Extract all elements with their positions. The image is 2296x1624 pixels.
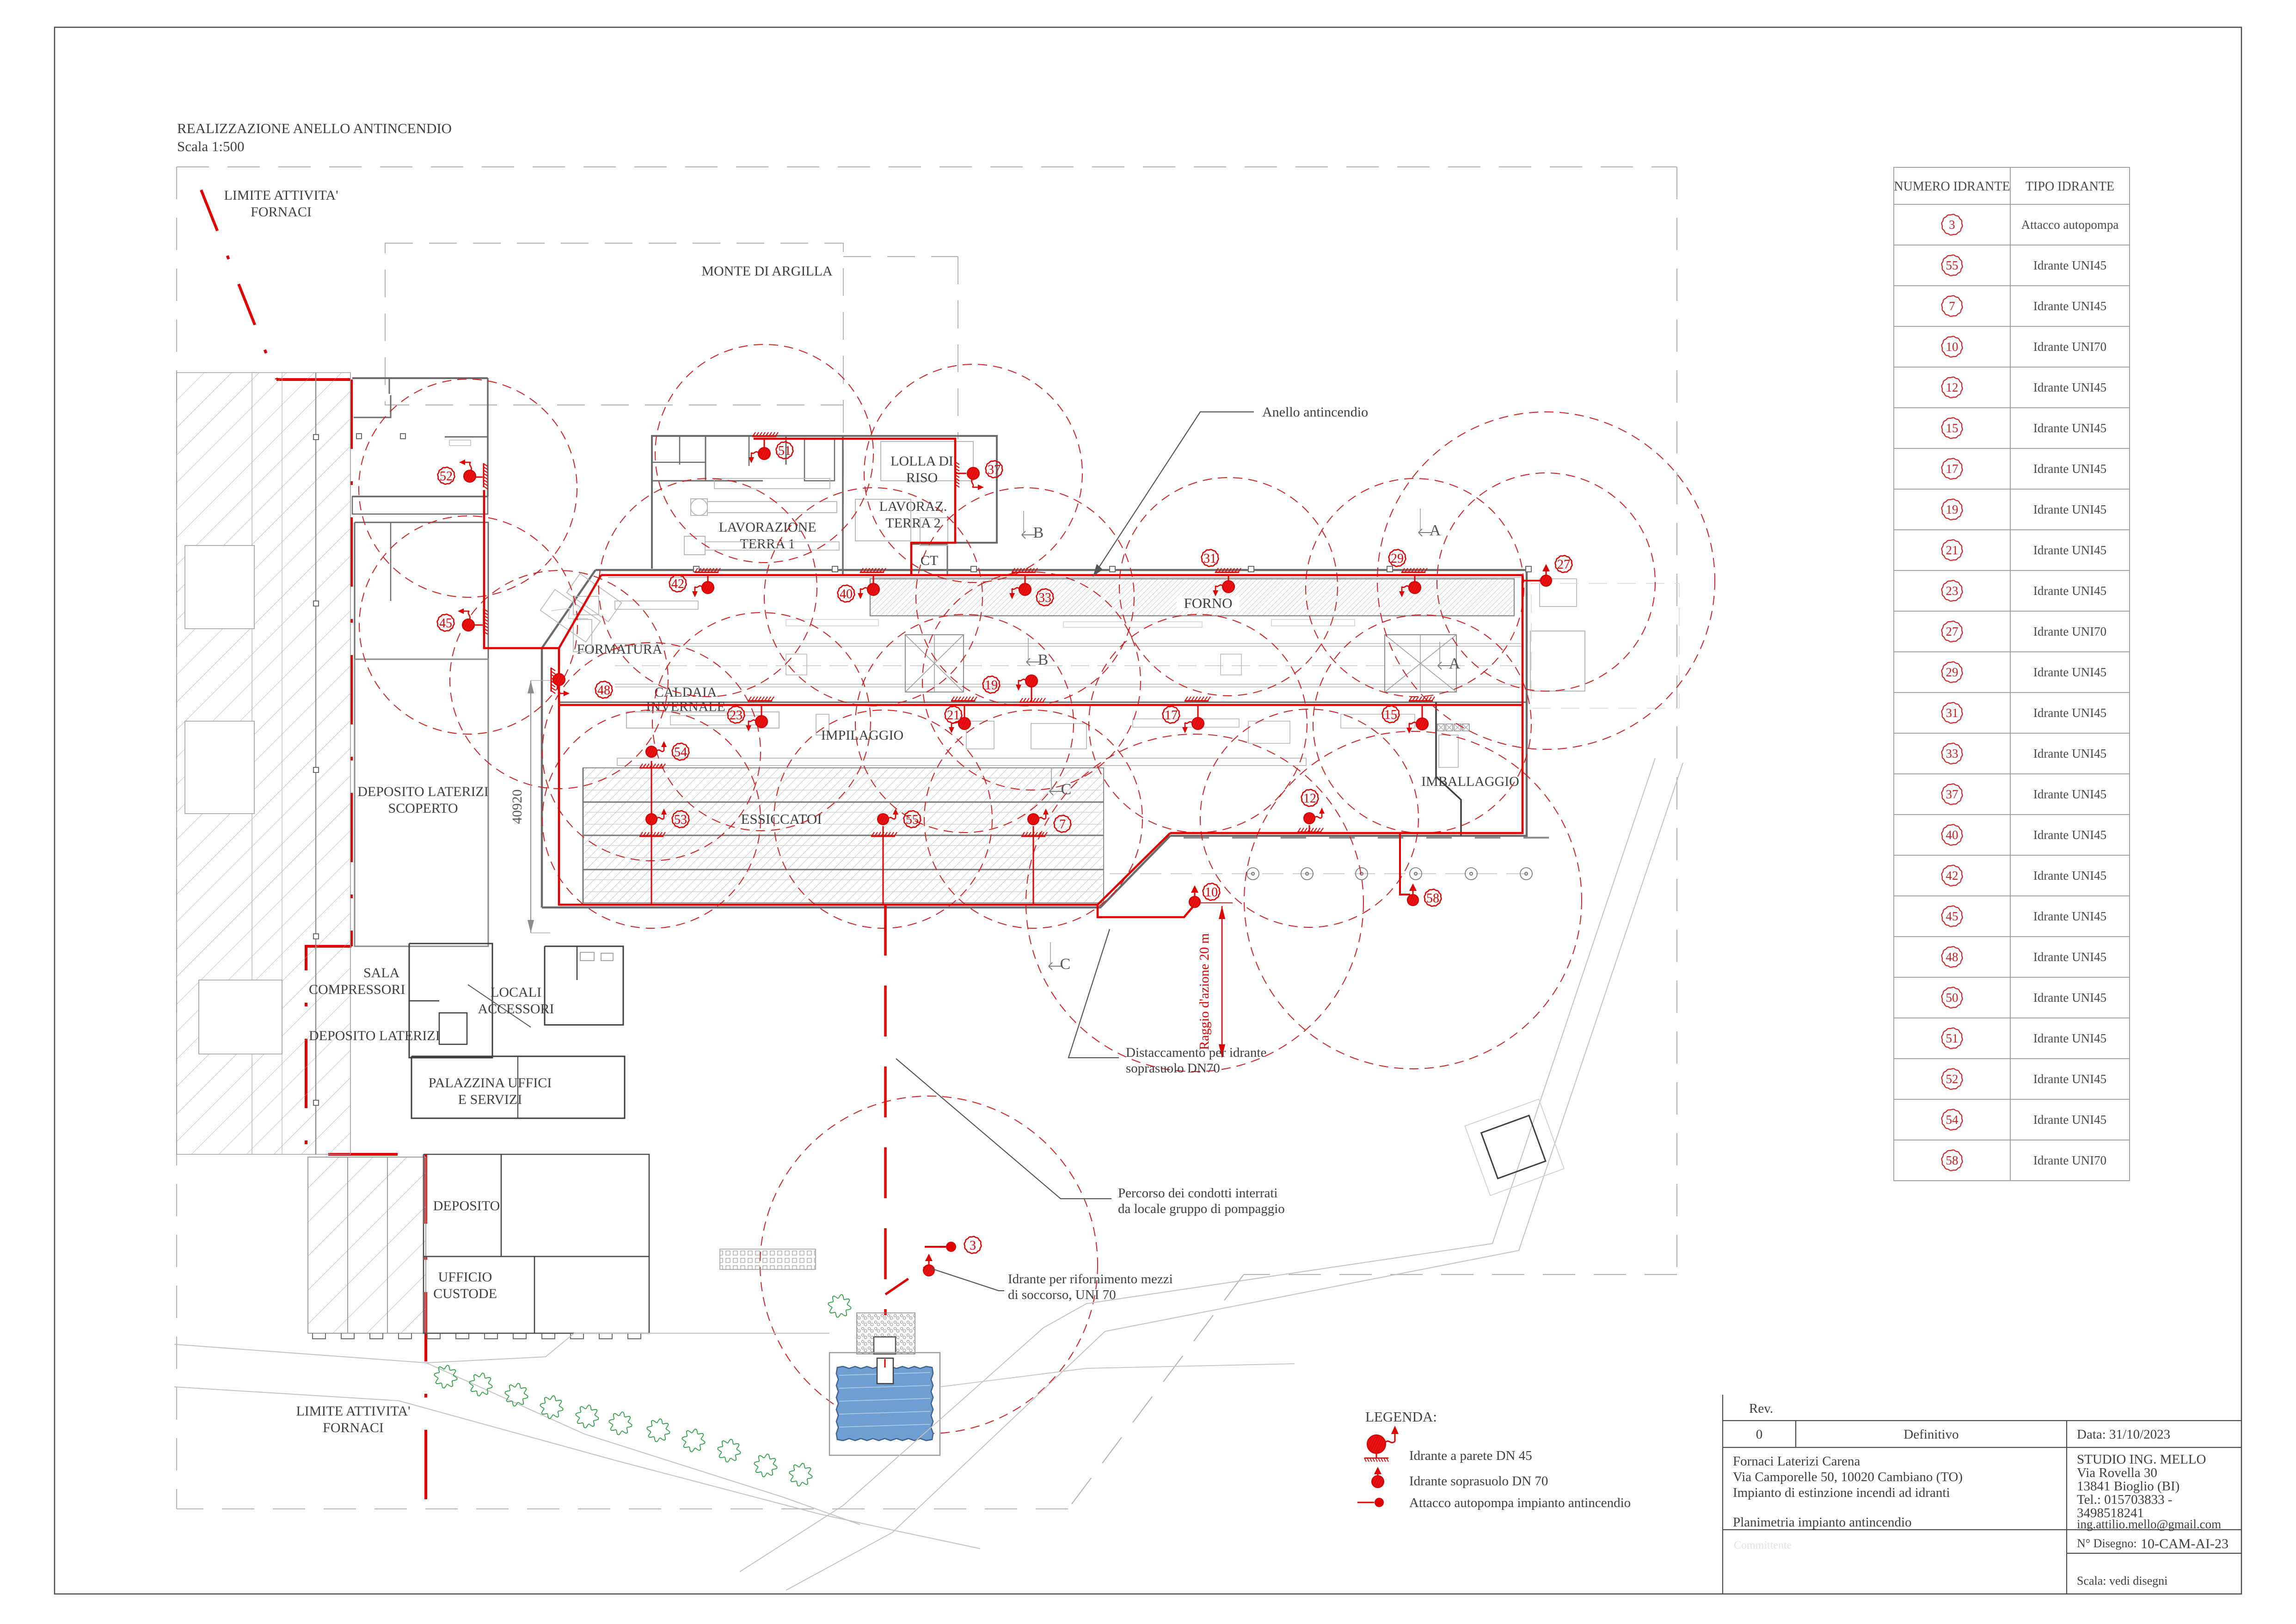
svg-text:Definitivo: Definitivo bbox=[1903, 1427, 1958, 1442]
svg-text:SALA: SALA bbox=[363, 965, 400, 981]
svg-text:LIMITE ATTIVITA': LIMITE ATTIVITA' bbox=[224, 188, 338, 203]
svg-text:Committente: Committente bbox=[1734, 1539, 1792, 1551]
svg-text:E SERVIZI: E SERVIZI bbox=[458, 1092, 522, 1107]
svg-text:7: 7 bbox=[1949, 299, 1955, 313]
svg-text:40920: 40920 bbox=[510, 790, 525, 824]
svg-text:DEPOSITO: DEPOSITO bbox=[433, 1198, 500, 1213]
svg-text:C: C bbox=[1060, 956, 1071, 973]
svg-text:51: 51 bbox=[1946, 1031, 1958, 1045]
svg-text:Idrante UNI45: Idrante UNI45 bbox=[2033, 1113, 2106, 1127]
svg-text:10: 10 bbox=[1205, 885, 1218, 900]
svg-text:IMBALLAGGIO: IMBALLAGGIO bbox=[1421, 774, 1519, 789]
svg-text:51: 51 bbox=[778, 444, 791, 458]
svg-text:55: 55 bbox=[1946, 258, 1958, 272]
svg-text:ACCESSORI: ACCESSORI bbox=[478, 1001, 554, 1017]
svg-text:Idrante UNI45: Idrante UNI45 bbox=[2033, 1072, 2106, 1086]
svg-text:50: 50 bbox=[1946, 991, 1958, 1005]
svg-text:7: 7 bbox=[1059, 817, 1066, 832]
svg-text:58: 58 bbox=[1426, 891, 1439, 906]
svg-text:23: 23 bbox=[1946, 584, 1958, 598]
svg-text:FORNACI: FORNACI bbox=[323, 1420, 384, 1435]
svg-text:LIMITE ATTIVITA': LIMITE ATTIVITA' bbox=[296, 1403, 410, 1419]
svg-text:FORNACI: FORNACI bbox=[251, 204, 312, 220]
svg-text:Idrante UNI45: Idrante UNI45 bbox=[2033, 869, 2106, 882]
svg-text:Scala 1:500: Scala 1:500 bbox=[177, 138, 245, 154]
svg-text:Idrante UNI45: Idrante UNI45 bbox=[2033, 462, 2106, 476]
svg-text:da locale gruppo di pompaggio: da locale gruppo di pompaggio bbox=[1118, 1201, 1285, 1216]
svg-text:Idrante UNI70: Idrante UNI70 bbox=[2033, 340, 2106, 354]
svg-text:Via Rovella 30: Via Rovella 30 bbox=[2077, 1465, 2157, 1480]
svg-text:Anello antincendio: Anello antincendio bbox=[1262, 404, 1368, 420]
svg-text:54: 54 bbox=[1946, 1113, 1959, 1127]
svg-text:19: 19 bbox=[1946, 503, 1958, 516]
svg-text:17: 17 bbox=[1946, 462, 1958, 476]
svg-text:29: 29 bbox=[1946, 665, 1958, 679]
svg-text:3: 3 bbox=[1949, 218, 1955, 232]
svg-text:10: 10 bbox=[1946, 340, 1958, 354]
svg-text:INVERNALE: INVERNALE bbox=[646, 699, 725, 714]
svg-text:CT: CT bbox=[921, 553, 938, 568]
svg-text:soprasuolo DN70: soprasuolo DN70 bbox=[1126, 1061, 1220, 1076]
svg-text:Idrante a parete DN 45: Idrante a parete DN 45 bbox=[1409, 1448, 1532, 1463]
svg-text:Idrante UNI45: Idrante UNI45 bbox=[2033, 787, 2106, 801]
svg-text:52: 52 bbox=[440, 469, 453, 484]
svg-text:C: C bbox=[1061, 781, 1072, 798]
svg-text:Idrante UNI45: Idrante UNI45 bbox=[2033, 665, 2106, 679]
svg-text:Idrante UNI70: Idrante UNI70 bbox=[2033, 625, 2106, 638]
svg-text:Idrante UNI45: Idrante UNI45 bbox=[2033, 991, 2106, 1005]
svg-text:Impianto di estinzione incendi: Impianto di estinzione incendi ad idrant… bbox=[1733, 1485, 1950, 1500]
svg-text:53: 53 bbox=[674, 813, 687, 827]
svg-text:Rev.: Rev. bbox=[1749, 1401, 1773, 1416]
svg-text:Idrante UNI45: Idrante UNI45 bbox=[2033, 503, 2106, 516]
svg-text:33: 33 bbox=[1038, 591, 1051, 605]
svg-text:STUDIO ING. MELLO: STUDIO ING. MELLO bbox=[2077, 1452, 2206, 1467]
svg-text:21: 21 bbox=[947, 708, 960, 723]
svg-text:Idrante UNI45: Idrante UNI45 bbox=[2033, 909, 2106, 923]
svg-text:27: 27 bbox=[1946, 625, 1958, 638]
svg-text:FORNO: FORNO bbox=[1184, 595, 1232, 611]
svg-text:40: 40 bbox=[1946, 828, 1958, 842]
svg-text:10-CAM-AI-23: 10-CAM-AI-23 bbox=[2141, 1536, 2228, 1551]
svg-text:DEPOSITO LATERIZI: DEPOSITO LATERIZI bbox=[357, 784, 489, 799]
svg-text:Idrante UNI45: Idrante UNI45 bbox=[2033, 747, 2106, 760]
svg-text:58: 58 bbox=[1946, 1153, 1958, 1167]
svg-text:Idrante UNI45: Idrante UNI45 bbox=[2033, 258, 2106, 272]
svg-text:Via Camporelle 50, 10020 Cambi: Via Camporelle 50, 10020 Cambiano (TO) bbox=[1733, 1470, 1963, 1484]
svg-text:Idrante per rifornimento mezzi: Idrante per rifornimento mezzi bbox=[1008, 1272, 1173, 1287]
svg-text:55: 55 bbox=[906, 813, 919, 827]
svg-text:ESSICCATOI: ESSICCATOI bbox=[741, 811, 822, 827]
svg-text:SCOPERTO: SCOPERTO bbox=[388, 801, 458, 816]
svg-text:Raggio d'azione 20 m: Raggio d'azione 20 m bbox=[1197, 933, 1212, 1050]
svg-text:A: A bbox=[1449, 655, 1461, 672]
svg-text:Scala: vedi disegni: Scala: vedi disegni bbox=[2077, 1574, 2167, 1587]
svg-text:B: B bbox=[1033, 524, 1044, 541]
svg-text:23: 23 bbox=[730, 708, 743, 723]
svg-text:0: 0 bbox=[1756, 1427, 1763, 1442]
svg-text:di soccorso, UNI 70: di soccorso, UNI 70 bbox=[1008, 1287, 1116, 1302]
svg-text:37: 37 bbox=[988, 463, 1001, 477]
svg-text:Attacco autopompa: Attacco autopompa bbox=[2021, 218, 2119, 232]
svg-text:Idrante UNI45: Idrante UNI45 bbox=[2033, 950, 2106, 964]
svg-text:N° Disegno:: N° Disegno: bbox=[2077, 1537, 2137, 1550]
svg-text:42: 42 bbox=[671, 577, 684, 591]
svg-text:12: 12 bbox=[1946, 380, 1958, 394]
svg-text:Idrante UNI45: Idrante UNI45 bbox=[2033, 421, 2106, 435]
svg-text:48: 48 bbox=[597, 683, 610, 698]
svg-text:Idrante UNI45: Idrante UNI45 bbox=[2033, 299, 2106, 313]
svg-text:A: A bbox=[1430, 522, 1441, 539]
svg-text:REALIZZAZIONE ANELLO ANTINCEND: REALIZZAZIONE ANELLO ANTINCENDIO bbox=[177, 120, 452, 136]
svg-text:FORMATURA: FORMATURA bbox=[577, 642, 662, 657]
svg-text:LOLLA DI: LOLLA DI bbox=[890, 453, 953, 469]
svg-text:45: 45 bbox=[1946, 909, 1958, 923]
svg-text:15: 15 bbox=[1946, 421, 1958, 435]
svg-text:Percorso dei condotti interrat: Percorso dei condotti interrati bbox=[1118, 1186, 1277, 1201]
svg-text:Idrante UNI45: Idrante UNI45 bbox=[2033, 380, 2106, 394]
svg-text:Idrante UNI45: Idrante UNI45 bbox=[2033, 1031, 2106, 1045]
svg-text:PALAZZINA UFFICI: PALAZZINA UFFICI bbox=[429, 1075, 552, 1091]
svg-text:3: 3 bbox=[970, 1238, 976, 1253]
svg-text:CUSTODE: CUSTODE bbox=[433, 1286, 497, 1301]
svg-text:TIPO IDRANTE: TIPO IDRANTE bbox=[2026, 179, 2114, 194]
svg-text:COMPRESSORI: COMPRESSORI bbox=[309, 982, 405, 997]
svg-text:31: 31 bbox=[1946, 706, 1958, 720]
svg-text:Idrante UNI45: Idrante UNI45 bbox=[2033, 543, 2106, 557]
svg-text:54: 54 bbox=[674, 745, 687, 760]
svg-text:12: 12 bbox=[1303, 791, 1316, 806]
svg-text:Idrante soprasuolo DN 70: Idrante soprasuolo DN 70 bbox=[1409, 1474, 1548, 1489]
svg-text:52: 52 bbox=[1946, 1072, 1958, 1086]
svg-text:RISO: RISO bbox=[906, 470, 938, 485]
svg-text:Fornaci Laterizi Carena: Fornaci Laterizi Carena bbox=[1733, 1454, 1860, 1469]
svg-text:LAVORAZ.: LAVORAZ. bbox=[879, 499, 947, 514]
svg-text:Data: 31/10/2023: Data: 31/10/2023 bbox=[2077, 1427, 2170, 1442]
svg-text:27: 27 bbox=[1557, 558, 1570, 572]
svg-text:TERRA 1: TERRA 1 bbox=[740, 536, 795, 552]
svg-text:21: 21 bbox=[1946, 543, 1958, 557]
svg-text:DEPOSITO LATERIZI: DEPOSITO LATERIZI bbox=[309, 1028, 440, 1043]
svg-text:Planimetria impianto antincend: Planimetria impianto antincendio bbox=[1733, 1515, 1912, 1530]
svg-text:Idrante UNI45: Idrante UNI45 bbox=[2033, 828, 2106, 842]
svg-text:Tel.: 015703833 -: Tel.: 015703833 - bbox=[2077, 1492, 2173, 1507]
svg-text:33: 33 bbox=[1946, 747, 1958, 760]
svg-text:29: 29 bbox=[1391, 552, 1404, 566]
svg-text:NUMERO IDRANTE: NUMERO IDRANTE bbox=[1894, 179, 2010, 194]
svg-text:MONTE DI ARGILLA: MONTE DI ARGILLA bbox=[701, 264, 833, 279]
svg-text:Idrante UNI45: Idrante UNI45 bbox=[2033, 706, 2106, 720]
svg-text:45: 45 bbox=[439, 616, 452, 631]
svg-text:48: 48 bbox=[1946, 950, 1958, 964]
svg-text:31: 31 bbox=[1203, 552, 1216, 566]
svg-text:19: 19 bbox=[985, 678, 998, 692]
svg-text:Attacco autopompa impianto ant: Attacco autopompa impianto antincendio bbox=[1409, 1495, 1631, 1510]
svg-text:LEGENDA:: LEGENDA: bbox=[1365, 1409, 1437, 1425]
svg-text:13841 Bioglio (BI): 13841 Bioglio (BI) bbox=[2077, 1479, 2179, 1494]
svg-text:17: 17 bbox=[1165, 708, 1178, 723]
svg-text:Idrante UNI70: Idrante UNI70 bbox=[2033, 1153, 2106, 1167]
svg-text:B: B bbox=[1038, 651, 1049, 668]
svg-text:ing.attilio.mello@gmail.com: ing.attilio.mello@gmail.com bbox=[2077, 1517, 2221, 1531]
svg-text:UFFICIO: UFFICIO bbox=[438, 1269, 492, 1285]
svg-text:Distaccamento per idrante: Distaccamento per idrante bbox=[1126, 1045, 1266, 1060]
svg-text:15: 15 bbox=[1384, 708, 1397, 722]
svg-text:LOCALI: LOCALI bbox=[491, 985, 541, 1000]
svg-text:Idrante UNI45: Idrante UNI45 bbox=[2033, 584, 2106, 598]
svg-text:37: 37 bbox=[1946, 787, 1958, 801]
svg-text:40: 40 bbox=[840, 587, 853, 601]
svg-text:IMPILAGGIO: IMPILAGGIO bbox=[821, 728, 903, 743]
svg-text:42: 42 bbox=[1946, 869, 1958, 882]
